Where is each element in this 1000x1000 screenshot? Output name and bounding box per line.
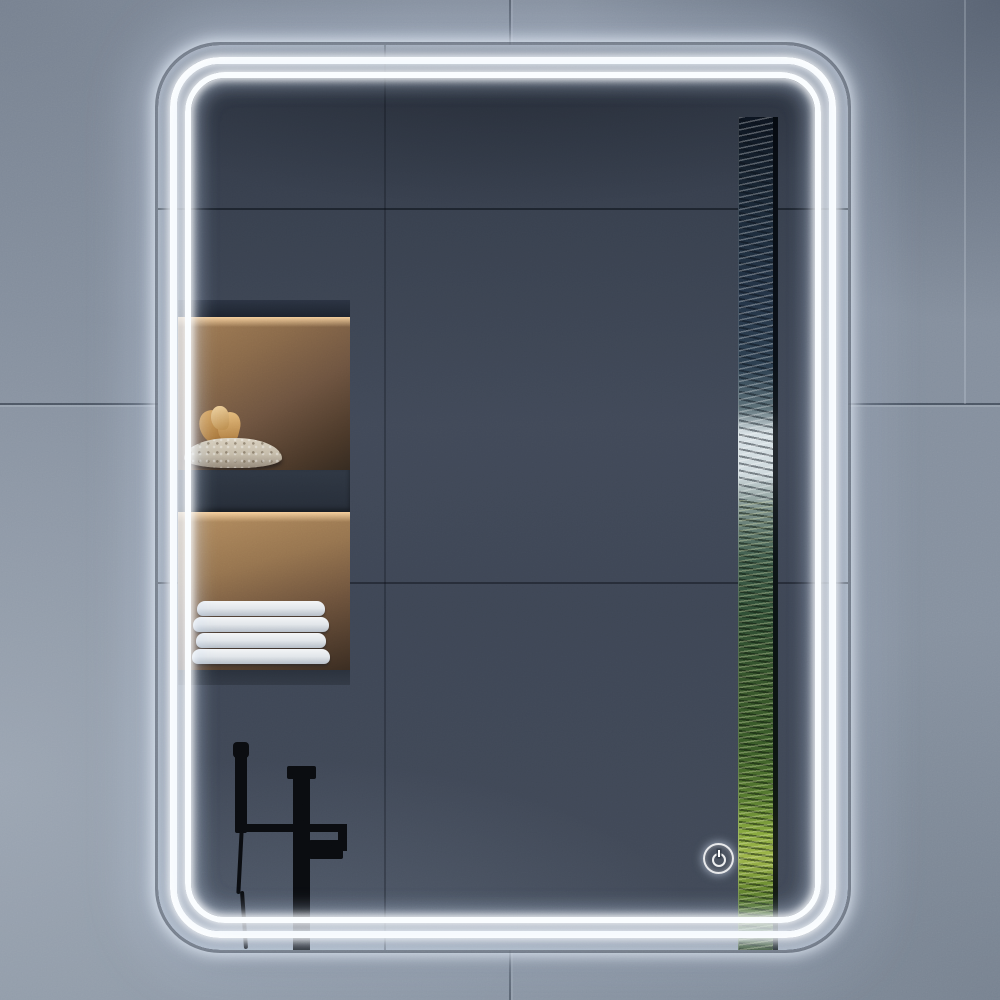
black-faucet-silhouette [158, 45, 848, 950]
led-mirror [158, 45, 848, 950]
power-icon-tick [718, 850, 720, 857]
mirror-reflection [158, 45, 848, 950]
shower-hose [240, 891, 248, 949]
faucet-mixer-body [309, 840, 343, 859]
faucet-riser-pole [293, 772, 310, 950]
shower-hose [236, 830, 243, 894]
faucet-crossbar-left [244, 824, 296, 832]
power-touch-button [703, 843, 734, 874]
bathroom-wall-scene [0, 0, 1000, 1000]
wall-grout-vertical-faint [964, 0, 966, 404]
faucet-pole-cap [287, 766, 316, 779]
hand-shower-wand [235, 745, 247, 833]
hand-shower-head [233, 742, 249, 758]
